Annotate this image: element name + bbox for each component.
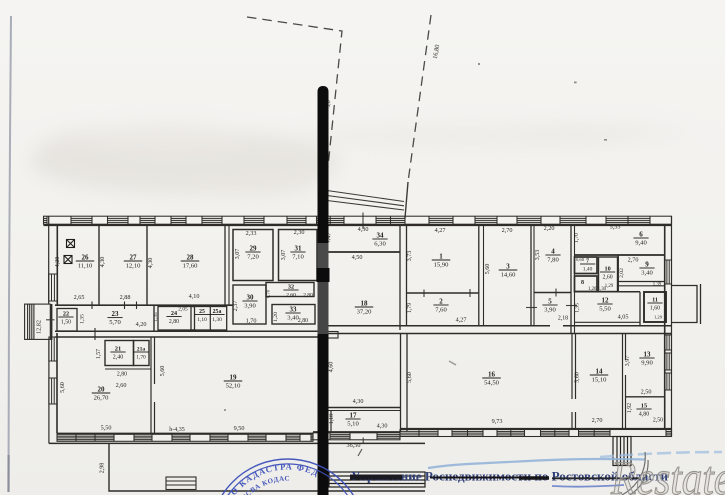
svg-text:5,50: 5,50 bbox=[101, 425, 112, 432]
svg-text:1,70: 1,70 bbox=[574, 233, 580, 243]
svg-text:16: 16 bbox=[488, 370, 496, 378]
svg-text:30: 30 bbox=[247, 293, 255, 301]
svg-text:11: 11 bbox=[652, 296, 658, 303]
svg-text:2,37: 2,37 bbox=[232, 301, 239, 312]
svg-text:1,35: 1,35 bbox=[80, 314, 86, 324]
svg-text:4,30: 4,30 bbox=[147, 258, 154, 269]
svg-text:2,50: 2,50 bbox=[653, 418, 663, 424]
svg-text:8: 8 bbox=[581, 280, 584, 286]
svg-text:2,70: 2,70 bbox=[592, 417, 603, 424]
svg-text:19: 19 bbox=[230, 373, 238, 381]
svg-text:3,73: 3,73 bbox=[406, 251, 413, 262]
svg-text:2,80: 2,80 bbox=[117, 372, 127, 378]
svg-text:9,90: 9,90 bbox=[641, 360, 653, 367]
svg-text:2,60: 2,60 bbox=[116, 382, 127, 389]
svg-text:4,30: 4,30 bbox=[99, 257, 106, 268]
svg-text:1,92: 1,92 bbox=[627, 403, 633, 413]
svg-text:1,35: 1,35 bbox=[153, 312, 159, 322]
svg-text:h-4,35: h-4,35 bbox=[169, 427, 185, 433]
svg-text:9,40: 9,40 bbox=[635, 240, 647, 247]
svg-text:5,60: 5,60 bbox=[574, 372, 581, 383]
svg-text:2,40: 2,40 bbox=[113, 355, 124, 361]
svg-text:4,60: 4,60 bbox=[328, 362, 335, 373]
svg-text:5,70: 5,70 bbox=[109, 319, 121, 326]
svg-text:5,50: 5,50 bbox=[599, 306, 611, 313]
svg-text:12,10: 12,10 bbox=[126, 263, 142, 270]
svg-text:2,98: 2,98 bbox=[100, 463, 106, 474]
svg-text:2,60: 2,60 bbox=[286, 293, 296, 299]
svg-text:17: 17 bbox=[350, 411, 358, 419]
svg-text:5,55: 5,55 bbox=[610, 224, 621, 231]
svg-text:4,30: 4,30 bbox=[377, 423, 388, 430]
svg-text:23: 23 bbox=[112, 310, 120, 318]
svg-text:1,20: 1,20 bbox=[273, 312, 279, 322]
svg-text:2,33: 2,33 bbox=[246, 230, 257, 237]
svg-text:1,29: 1,29 bbox=[605, 284, 614, 289]
svg-text:27: 27 bbox=[130, 253, 138, 261]
svg-text:15: 15 bbox=[641, 402, 647, 409]
svg-text:54,50: 54,50 bbox=[484, 380, 500, 387]
svg-text:2,80: 2,80 bbox=[303, 293, 313, 299]
svg-text:5,60: 5,60 bbox=[484, 264, 491, 275]
svg-text:11,10: 11,10 bbox=[78, 263, 93, 270]
svg-text:3,90: 3,90 bbox=[244, 303, 256, 310]
svg-text:7: 7 bbox=[586, 258, 589, 264]
svg-text:3,90: 3,90 bbox=[544, 307, 556, 314]
svg-text:14: 14 bbox=[596, 367, 604, 375]
svg-text:1,50: 1,50 bbox=[61, 320, 71, 326]
svg-text:26,70: 26,70 bbox=[94, 395, 110, 402]
svg-text:15,10: 15,10 bbox=[592, 377, 608, 384]
svg-text:4,27: 4,27 bbox=[456, 317, 467, 324]
svg-text:20: 20 bbox=[98, 385, 106, 393]
svg-text:18: 18 bbox=[361, 299, 369, 307]
svg-text:2,30: 2,30 bbox=[294, 229, 305, 236]
svg-text:4,27: 4,27 bbox=[435, 227, 446, 234]
svg-text:36,50: 36,50 bbox=[347, 442, 361, 449]
svg-text:21a: 21a bbox=[137, 346, 146, 352]
svg-text:29: 29 bbox=[250, 244, 258, 252]
svg-text:2,50: 2,50 bbox=[641, 389, 652, 396]
svg-text:3: 3 bbox=[506, 262, 510, 270]
svg-text:2: 2 bbox=[439, 297, 443, 305]
svg-text:9: 9 bbox=[645, 260, 649, 268]
svg-text:4,05: 4,05 bbox=[618, 314, 629, 321]
svg-text:5,60: 5,60 bbox=[406, 372, 413, 383]
svg-text:2,60: 2,60 bbox=[603, 275, 613, 281]
svg-text:21: 21 bbox=[115, 345, 121, 352]
svg-text:7,60: 7,60 bbox=[435, 307, 447, 314]
svg-text:2,02: 2,02 bbox=[619, 268, 625, 278]
svg-text:5,60: 5,60 bbox=[159, 366, 166, 377]
svg-text:1,79: 1,79 bbox=[407, 303, 413, 313]
svg-text:1,70: 1,70 bbox=[136, 355, 146, 361]
svg-text:2,88: 2,88 bbox=[120, 294, 131, 301]
svg-text:3,53: 3,53 bbox=[534, 250, 541, 261]
svg-text:5: 5 bbox=[548, 297, 552, 305]
svg-text:3,97: 3,97 bbox=[624, 356, 631, 367]
svg-text:5,10: 5,10 bbox=[347, 421, 359, 428]
svg-text:1,20 1,30: 1,20 1,30 bbox=[588, 287, 607, 292]
svg-text:4,50: 4,50 bbox=[352, 254, 363, 261]
svg-text:7,10: 7,10 bbox=[292, 254, 304, 261]
svg-text:6: 6 bbox=[639, 230, 643, 238]
svg-text:2,80: 2,80 bbox=[169, 319, 179, 325]
svg-text:4,30: 4,30 bbox=[358, 226, 369, 233]
svg-text:1,39: 1,39 bbox=[653, 283, 662, 288]
svg-text:1: 1 bbox=[439, 252, 443, 260]
svg-text:6,30: 6,30 bbox=[374, 241, 386, 248]
svg-text:4,80: 4,80 bbox=[639, 412, 650, 418]
svg-text:1,35: 1,35 bbox=[575, 303, 581, 313]
svg-text:37,20: 37,20 bbox=[357, 309, 373, 316]
svg-text:4,10: 4,10 bbox=[189, 293, 200, 300]
svg-text:24: 24 bbox=[171, 310, 177, 317]
svg-text:13: 13 bbox=[644, 350, 652, 358]
svg-text:1,57: 1,57 bbox=[96, 349, 102, 359]
svg-text:14,60: 14,60 bbox=[501, 272, 517, 279]
svg-text:2,80: 2,80 bbox=[298, 318, 308, 324]
svg-text:25: 25 bbox=[199, 309, 205, 315]
svg-text:3,07: 3,07 bbox=[234, 249, 241, 260]
svg-text:1,70: 1,70 bbox=[246, 318, 257, 325]
svg-text:26: 26 bbox=[82, 253, 90, 261]
svg-text:28: 28 bbox=[187, 253, 195, 261]
svg-text:4,20: 4,20 bbox=[136, 321, 147, 328]
svg-text:2,70: 2,70 bbox=[502, 227, 513, 234]
svg-text:1,10: 1,10 bbox=[197, 317, 207, 323]
svg-text:10: 10 bbox=[605, 265, 611, 272]
svg-text:3,07: 3,07 bbox=[280, 250, 287, 261]
svg-text:2,05: 2,05 bbox=[178, 307, 188, 313]
svg-text:5,60: 5,60 bbox=[59, 382, 66, 393]
svg-text:12: 12 bbox=[602, 296, 610, 304]
svg-text:33: 33 bbox=[290, 305, 298, 313]
svg-text:4,20: 4,20 bbox=[54, 257, 61, 268]
svg-text:2,65: 2,65 bbox=[74, 294, 85, 301]
svg-text:1,18: 1,18 bbox=[329, 414, 335, 424]
svg-text:22: 22 bbox=[63, 310, 69, 317]
svg-text:2,70: 2,70 bbox=[628, 257, 639, 264]
svg-text:2,18: 2,18 bbox=[558, 316, 568, 322]
svg-text:Restate: Restate bbox=[610, 452, 725, 495]
svg-text:1,30: 1,30 bbox=[212, 317, 222, 323]
svg-text:12,82: 12,82 bbox=[36, 320, 43, 334]
svg-text:31: 31 bbox=[295, 244, 303, 252]
svg-text:17,60: 17,60 bbox=[183, 263, 199, 270]
svg-text:52,10: 52,10 bbox=[226, 383, 242, 390]
svg-text:9,73: 9,73 bbox=[492, 418, 503, 425]
svg-text:3,40: 3,40 bbox=[641, 270, 653, 277]
svg-text:4: 4 bbox=[551, 247, 555, 255]
svg-text:7,80: 7,80 bbox=[547, 257, 559, 264]
svg-text:25a: 25a bbox=[213, 309, 222, 315]
svg-text:32: 32 bbox=[288, 283, 294, 290]
svg-text:7,20: 7,20 bbox=[247, 254, 259, 261]
svg-text:9,50: 9,50 bbox=[234, 425, 245, 432]
svg-text:1,40: 1,40 bbox=[583, 267, 593, 273]
svg-text:1,60: 1,60 bbox=[650, 306, 660, 312]
svg-text:15,90: 15,90 bbox=[434, 262, 450, 269]
svg-text:34: 34 bbox=[377, 231, 385, 239]
svg-text:4,30: 4,30 bbox=[353, 398, 364, 405]
svg-text:2,20: 2,20 bbox=[544, 225, 555, 232]
